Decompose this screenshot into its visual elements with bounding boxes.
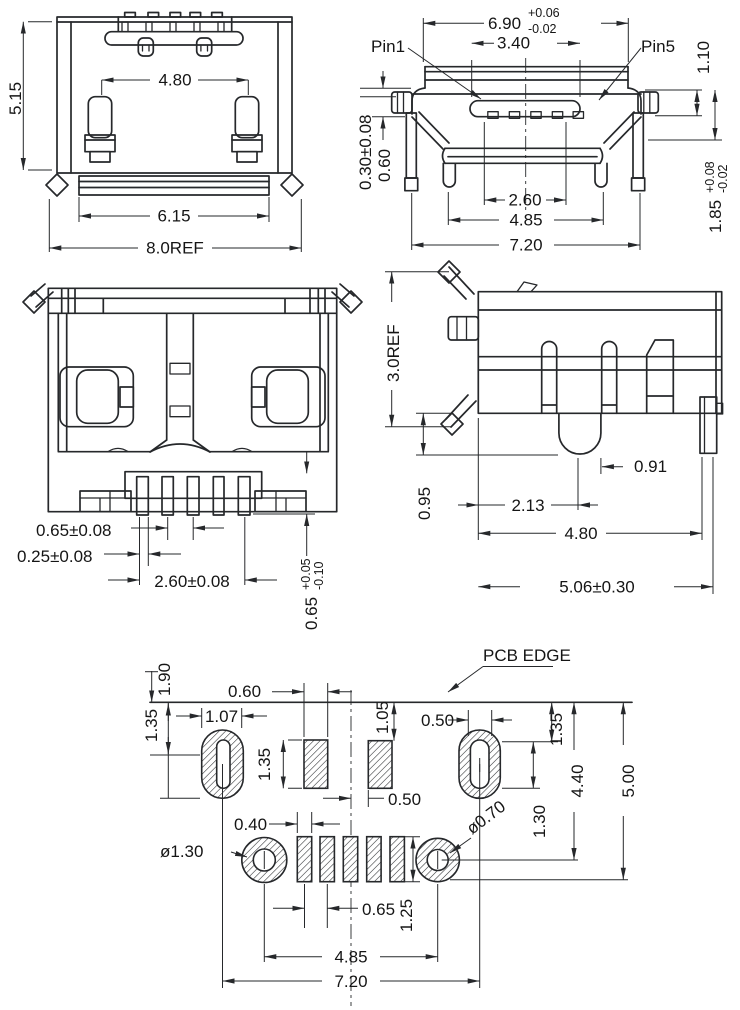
side-view: 3.0REF 0.95 2.13 4.80 5.06±0.30 0.91 [384, 261, 723, 597]
dim-lug-depth: 0.95 [415, 487, 434, 520]
dim-foot-height: 0.60 [375, 149, 394, 182]
label-pcb-edge: PCB EDGE [483, 646, 571, 665]
bottom-view-geometry [23, 284, 362, 515]
dim-mating-height-tol-lower: -0.02 [716, 164, 730, 193]
smt-pad-left [304, 740, 328, 788]
dim-pad-right-offset: 0.50 [388, 790, 421, 809]
pin-pad-4 [367, 837, 381, 882]
dim-tail-tol-lower: -0.10 [312, 561, 326, 590]
dim-shell-width-tol-upper: +0.06 [528, 6, 560, 20]
dim-rear-overall-width: 8.0REF [146, 239, 204, 258]
dim-standoff: 0.30±0.08 [356, 114, 375, 190]
dim-pin-width: 0.65±0.08 [36, 521, 112, 540]
dim-board-depth: 5.00 [619, 764, 638, 797]
dim-rear-latch-span: 4.80 [158, 71, 191, 90]
dim-lug-width: 0.91 [634, 457, 667, 476]
dim-slot-hole-width: 0.50 [421, 711, 454, 730]
pin-pad-1 [297, 837, 311, 882]
dim-slot-center-offset: 1.35 [142, 709, 161, 742]
pin-pad-5 [390, 837, 404, 882]
dim-hole-row-offset: 4.40 [568, 764, 587, 797]
dim-small-hole-dia: ø0.70 [463, 797, 509, 838]
dim-front-overall-width: 7.20 [509, 236, 542, 255]
rear-view: 5.15 4.80 6.15 8.0REF [6, 13, 303, 258]
label-pin1: Pin1 [371, 37, 405, 56]
pcb-layout-view: PCB EDGE 1.90 1.35 1.07 0.60 1.35 1.05 0… [142, 646, 638, 1006]
bottom-view: 0.65±0.08 0.25±0.08 2.60±0.08 0.65 +0.05… [17, 284, 362, 630]
pin-pad-3 [343, 837, 357, 882]
mount-slot-left-hole [217, 740, 230, 788]
dim-shell-width: 6.90 [488, 14, 521, 33]
dim-slot-span: 7.20 [334, 972, 367, 991]
dim-slot-hole-height: 1.30 [530, 805, 549, 838]
engineering-drawing-page: 5.15 4.80 6.15 8.0REF [0, 0, 740, 1010]
dim-lug-center: 2.13 [511, 496, 544, 515]
dim-edge-overhang: 1.90 [155, 663, 174, 696]
dim-mating-height: 1.85 [706, 200, 725, 233]
dim-pad-height: 1.35 [255, 748, 274, 781]
dim-top-clearance: 1.10 [694, 41, 713, 74]
dim-pin-pad-width: 0.40 [234, 815, 267, 834]
pin-pad-2 [320, 837, 334, 882]
dim-tongue-width: 3.40 [497, 34, 530, 53]
dim-front-leg-span: 4.85 [509, 211, 542, 230]
dim-slot-width: 1.07 [205, 707, 238, 726]
rear-view-geometry [46, 13, 303, 197]
label-pin5: Pin5 [641, 37, 675, 56]
micro-usb-dimensional-drawing: 5.15 4.80 6.15 8.0REF [0, 0, 740, 1010]
dim-pin-pad-height: 1.25 [397, 899, 416, 932]
dim-rear-base-width: 6.15 [157, 207, 190, 226]
dim-hole-span: 4.85 [334, 948, 367, 967]
smt-pad-right [368, 741, 392, 789]
dim-tail-length: 0.65 [302, 597, 321, 630]
side-view-dimensions [385, 272, 713, 594]
dim-large-hole-dia: ø1.30 [160, 842, 203, 861]
dim-rear-height: 5.15 [6, 82, 25, 115]
front-view-geometry [392, 67, 659, 191]
front-view: Pin1 Pin5 6.90 +0.06 -0.02 3.40 1.10 0.3… [356, 6, 730, 255]
dim-side-height: 3.0REF [384, 324, 403, 382]
dim-mating-height-tol-upper: +0.08 [703, 161, 717, 193]
dim-side-leg-span: 4.80 [564, 524, 597, 543]
dim-pin-pad-pitch: 0.65 [362, 900, 395, 919]
side-view-geometry [438, 261, 723, 454]
dim-tail-length-group: 0.65 +0.05 -0.10 [299, 558, 326, 630]
dim-pad-top-offset: 1.05 [373, 701, 392, 734]
dim-mating-height-group: 1.85 +0.08 -0.02 [703, 161, 730, 233]
dim-pin-row-span: 2.60±0.08 [154, 572, 230, 591]
dim-tail-tol-upper: +0.05 [299, 558, 313, 590]
dim-right-slot-offset: 1.35 [547, 713, 566, 746]
dim-shell-width-tol-lower: -0.02 [528, 22, 557, 36]
dim-contact-span: 2.60 [508, 191, 541, 210]
dim-overall-depth: 5.06±0.30 [559, 578, 635, 597]
dim-pin-offset: 0.25±0.08 [17, 547, 93, 566]
dim-pad-width: 0.60 [228, 682, 261, 701]
